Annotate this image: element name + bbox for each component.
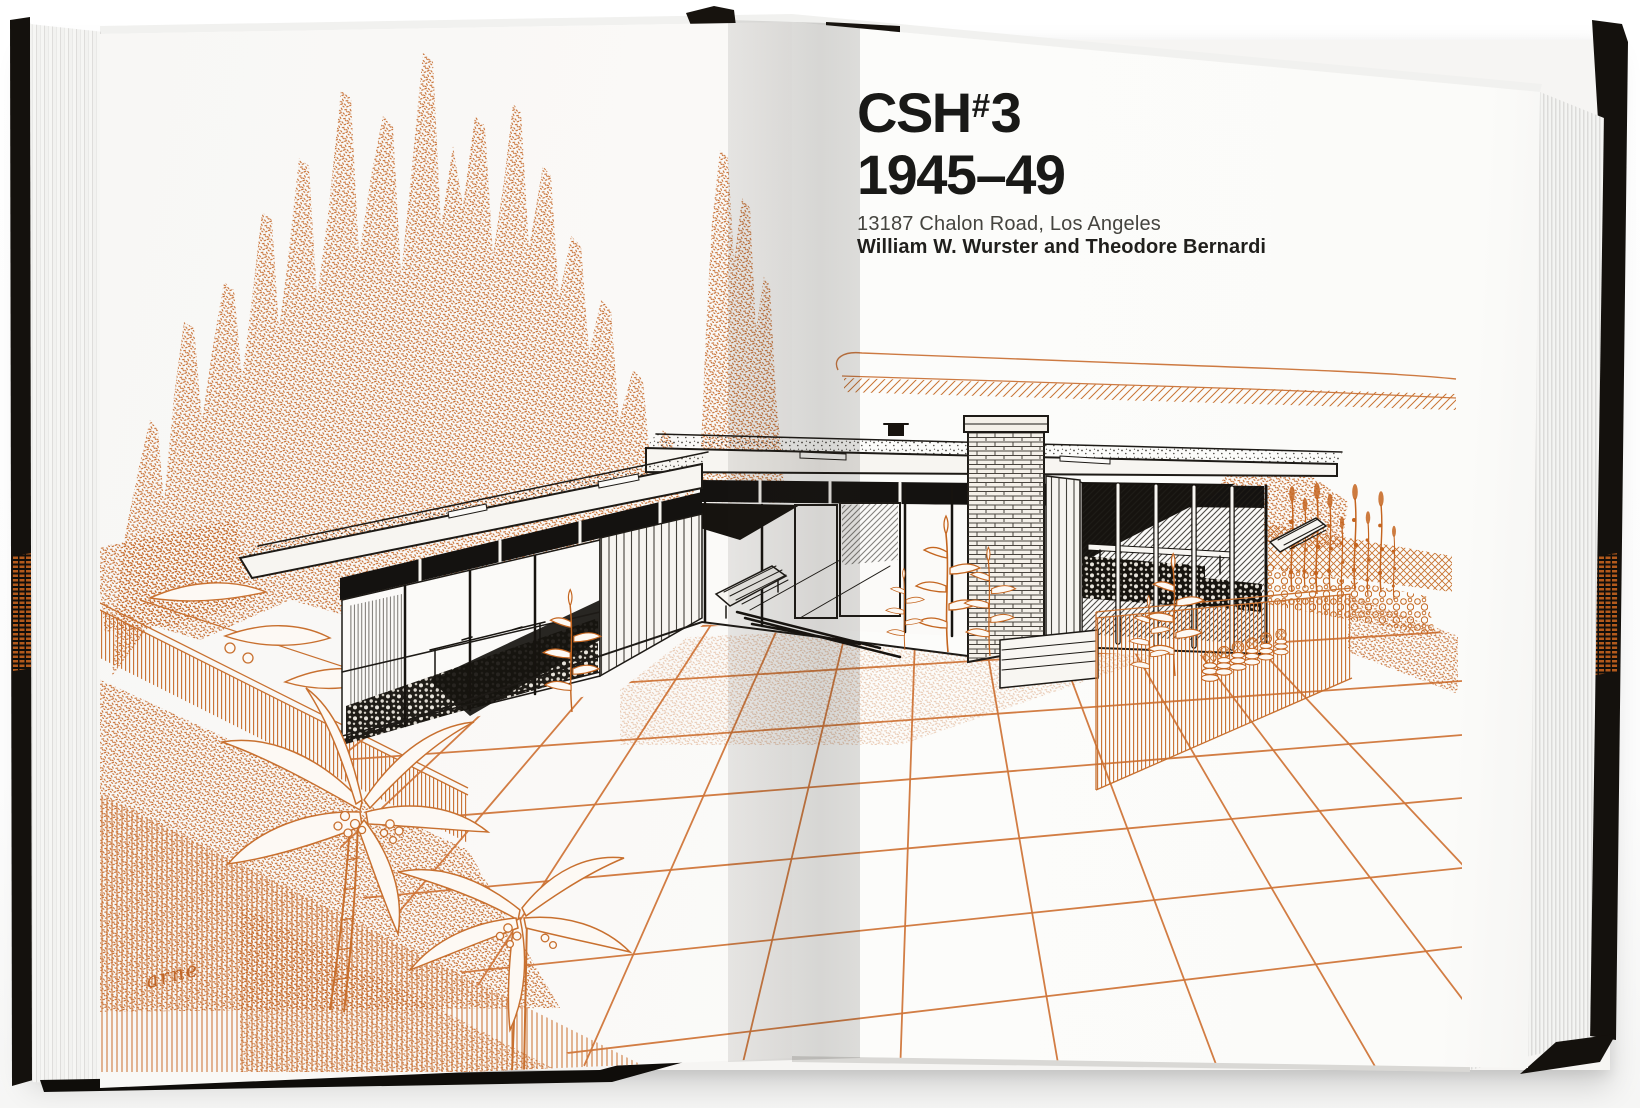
title-block: CSH#3 1945–49 13187 Chalon Road, Los Ang… (857, 86, 1266, 259)
project-architects: William W. Wurster and Theodore Bernardi (857, 236, 1266, 259)
title-prefix: CSH (857, 81, 971, 144)
page-title: CSH#3 (857, 86, 1266, 148)
project-address: 13187 Chalon Road, Los Angeles (857, 213, 1266, 236)
book-photo: arne CSH#3 1945–49 13187 Chalon Road, Lo… (0, 0, 1640, 1108)
title-years: 1945–49 (857, 148, 1266, 202)
title-hash: # (972, 87, 990, 124)
title-number: 3 (991, 81, 1021, 144)
hillside-contour (836, 353, 1456, 410)
